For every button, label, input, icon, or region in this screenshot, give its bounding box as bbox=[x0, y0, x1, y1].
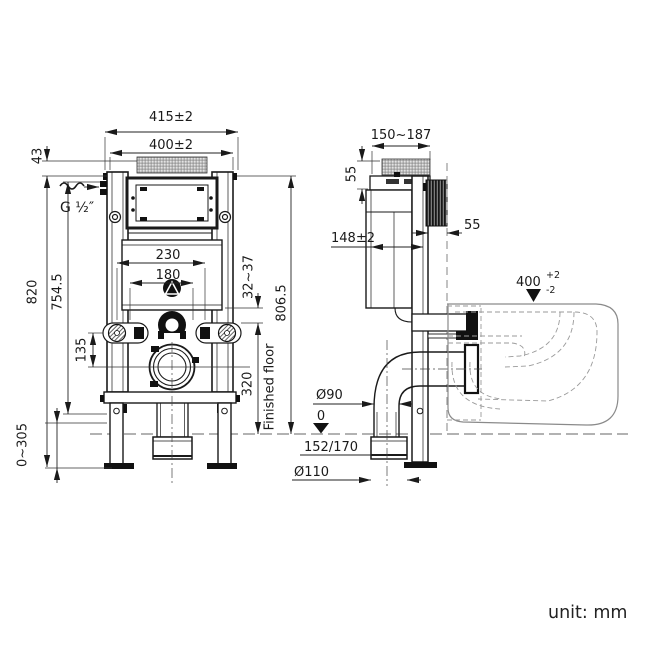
dim-label-axis-offset: 135 bbox=[75, 338, 90, 363]
dim-label-height-inlet: 754.5 bbox=[51, 273, 66, 310]
inlet-thread-label: G ½″ bbox=[60, 200, 94, 216]
cistern-frame-drawing: G ½″ 415±2 400±2 43 bbox=[0, 0, 650, 650]
dim-label-rim-height: 400 bbox=[516, 275, 541, 290]
dim-label-height-total: 820 bbox=[26, 280, 41, 305]
access-panel-hatch-side bbox=[382, 159, 430, 175]
dim-label-stud-protrusion: 32~37 bbox=[242, 255, 257, 299]
dim-height-inlet: 754.5 bbox=[51, 182, 108, 414]
through-wall-shaft bbox=[426, 180, 447, 226]
dim-label-plate-height: 55 bbox=[345, 166, 360, 183]
dim-label-frame-depth: 148±2 bbox=[331, 231, 375, 246]
dim-label-rim-tol-plus: +2 bbox=[546, 270, 560, 281]
flush-pipe-connector bbox=[154, 311, 190, 342]
dim-leg-adjust: 0~305 bbox=[16, 408, 113, 483]
dim-label-bolt-span-narrow: 180 bbox=[156, 268, 181, 283]
dim-label-outlet-heights: 152/170 bbox=[304, 440, 358, 455]
dim-label-width-outer: 415±2 bbox=[149, 110, 193, 125]
dim-drain-dia: Ø110 bbox=[292, 465, 421, 480]
technical-drawing-page: G ½″ 415±2 400±2 43 bbox=[0, 0, 650, 650]
water-inlet: G ½″ bbox=[60, 181, 107, 216]
dim-label-rim-tol-minus: -2 bbox=[546, 285, 555, 296]
dim-label-width-inner: 400±2 bbox=[149, 138, 193, 153]
foot-side bbox=[404, 462, 437, 468]
foot-right bbox=[207, 463, 237, 469]
front-view: G ½″ 415±2 400±2 43 bbox=[16, 110, 297, 484]
drain-stub bbox=[153, 400, 192, 459]
side-view: 150~187 55 148±2 55 400 +2 bbox=[292, 128, 618, 486]
dim-label-top-offset: 43 bbox=[31, 148, 46, 165]
dim-floor-zero: 0 bbox=[313, 409, 329, 434]
access-panel-hatch bbox=[137, 157, 207, 173]
floor-zero-marker bbox=[313, 423, 329, 434]
fixing-bolt-right bbox=[196, 323, 241, 343]
finished-floor-label: Finished floor bbox=[263, 343, 278, 430]
dim-label-leg-adjust: 0~305 bbox=[16, 423, 31, 467]
dim-label-elbow-dia: Ø90 bbox=[316, 388, 343, 403]
dim-label-height-front: 806.5 bbox=[275, 284, 290, 321]
dim-label-depth-adjust: 150~187 bbox=[371, 128, 432, 143]
front-frame-structure bbox=[88, 157, 250, 484]
dim-label-bolt-span-wide: 230 bbox=[156, 248, 181, 263]
rim-level-marker bbox=[526, 289, 541, 302]
side-frame-structure bbox=[366, 159, 482, 486]
dim-label-wall-gap: 55 bbox=[464, 218, 481, 233]
dim-axis-offset: 135 bbox=[75, 333, 94, 367]
dim-rim-height: 400 +2 -2 bbox=[516, 270, 560, 302]
dim-flush-pipe-height: 320 bbox=[241, 323, 259, 434]
dim-label-flush-pipe-height: 320 bbox=[241, 372, 256, 397]
cistern-side-profile bbox=[366, 190, 412, 308]
unit-note: unit: mm bbox=[548, 603, 627, 623]
dim-elbow-dia: Ø90 bbox=[313, 388, 412, 404]
dim-label-drain-dia: Ø110 bbox=[294, 465, 329, 480]
fixing-bolt-left bbox=[103, 323, 148, 343]
dim-label-floor-zero: 0 bbox=[317, 409, 325, 424]
